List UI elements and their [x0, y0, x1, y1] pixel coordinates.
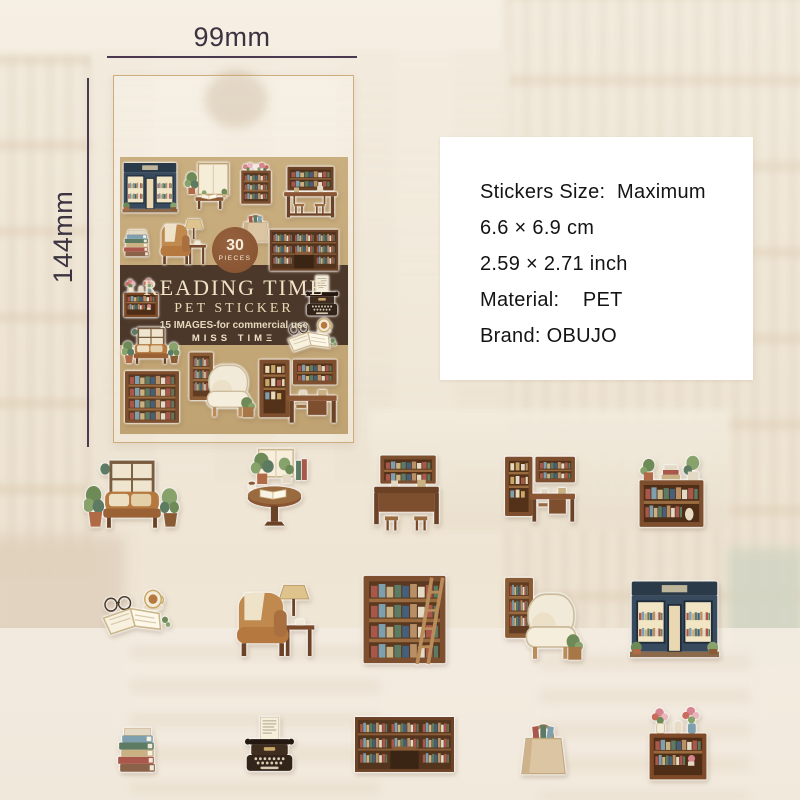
- cover-sticker-flower-bookshelf-icon: [237, 163, 275, 205]
- width-dimension-label: 99mm: [182, 22, 282, 53]
- sticker-bookstore-front-icon: [629, 577, 720, 658]
- product-subtitle: PET STICKER: [120, 301, 348, 317]
- cover-sticker-corner-desk-icon: [256, 355, 340, 425]
- sticker-open-book-glasses-coffee-icon: [96, 588, 171, 642]
- cover-sticker-book-stack-icon: [120, 226, 154, 257]
- cover-sticker-armchair-lamp-icon: [154, 217, 208, 268]
- background-green-wall: [728, 548, 800, 668]
- product-image: 99mm 144mm READING TIME PET STICKER 15 I…: [0, 0, 800, 800]
- width-dimension-line: [107, 56, 357, 58]
- sticker-package-sleeve: READING TIME PET STICKER 15 IMAGES-for c…: [113, 75, 354, 443]
- product-title: READING TIME: [120, 265, 348, 300]
- spec-size-inch-line: 2.59 × 2.71 inch: [480, 246, 753, 282]
- height-dimension-label: 144mm: [48, 187, 76, 287]
- badge-count: 30: [226, 237, 244, 254]
- cover-sticker-desk-hutch-icon: [283, 165, 338, 221]
- package-cover: READING TIME PET STICKER 15 IMAGES-for c…: [120, 157, 348, 434]
- cover-sticker-cream-armchair-icon: [186, 351, 255, 423]
- sticker-flower-vase-bookshelf-icon: [646, 704, 710, 783]
- spec-material-line: Material: PET: [480, 282, 753, 318]
- spec-size-line: Stickers Size: Maximum: [480, 174, 753, 210]
- cover-sticker-tall-bookshelf-icon: [122, 370, 182, 424]
- sticker-armchair-with-lamp-icon: [226, 581, 318, 662]
- brand-logo: MISS TIMΞ: [120, 334, 348, 344]
- cover-sticker-reading-nook-icon: [184, 162, 232, 210]
- sticker-library-study-desk-icon: [368, 454, 445, 532]
- spec-panel: Stickers Size: Maximum 6.6 × 6.9 cm 2.59…: [440, 137, 753, 380]
- sticker-vintage-typewriter-icon: [241, 716, 298, 777]
- height-dimension-line: [87, 78, 89, 447]
- sticker-window-seat-reading-corner-icon: [84, 460, 180, 530]
- badge-unit: PIECES: [219, 255, 252, 263]
- sticker-reading-table-icon: [237, 448, 309, 532]
- sticker-library-counter-wall-icon: [354, 716, 455, 775]
- spec-size-cm-line: 6.6 × 6.9 cm: [480, 210, 753, 246]
- spec-brand-line: Brand: OBUJO: [480, 318, 753, 354]
- usage-note: 15 IMAGES-for commercial use: [120, 320, 348, 331]
- sticker-book-tote-bag-icon: [517, 713, 570, 777]
- sticker-ladder-bookshelf-icon: [359, 574, 450, 665]
- cover-sticker-bookstore-front-icon: [122, 160, 178, 213]
- background-bookshelf-left: [0, 55, 92, 575]
- sticker-corner-study-desk-icon: [502, 452, 578, 524]
- sticker-book-stack-icon: [112, 721, 163, 773]
- sticker-plant-top-bookshelf-icon: [636, 451, 707, 530]
- sticker-cream-armchair-icon: [501, 576, 583, 667]
- background-left-column: [0, 535, 125, 800]
- background-book-stacks-right: [540, 655, 750, 800]
